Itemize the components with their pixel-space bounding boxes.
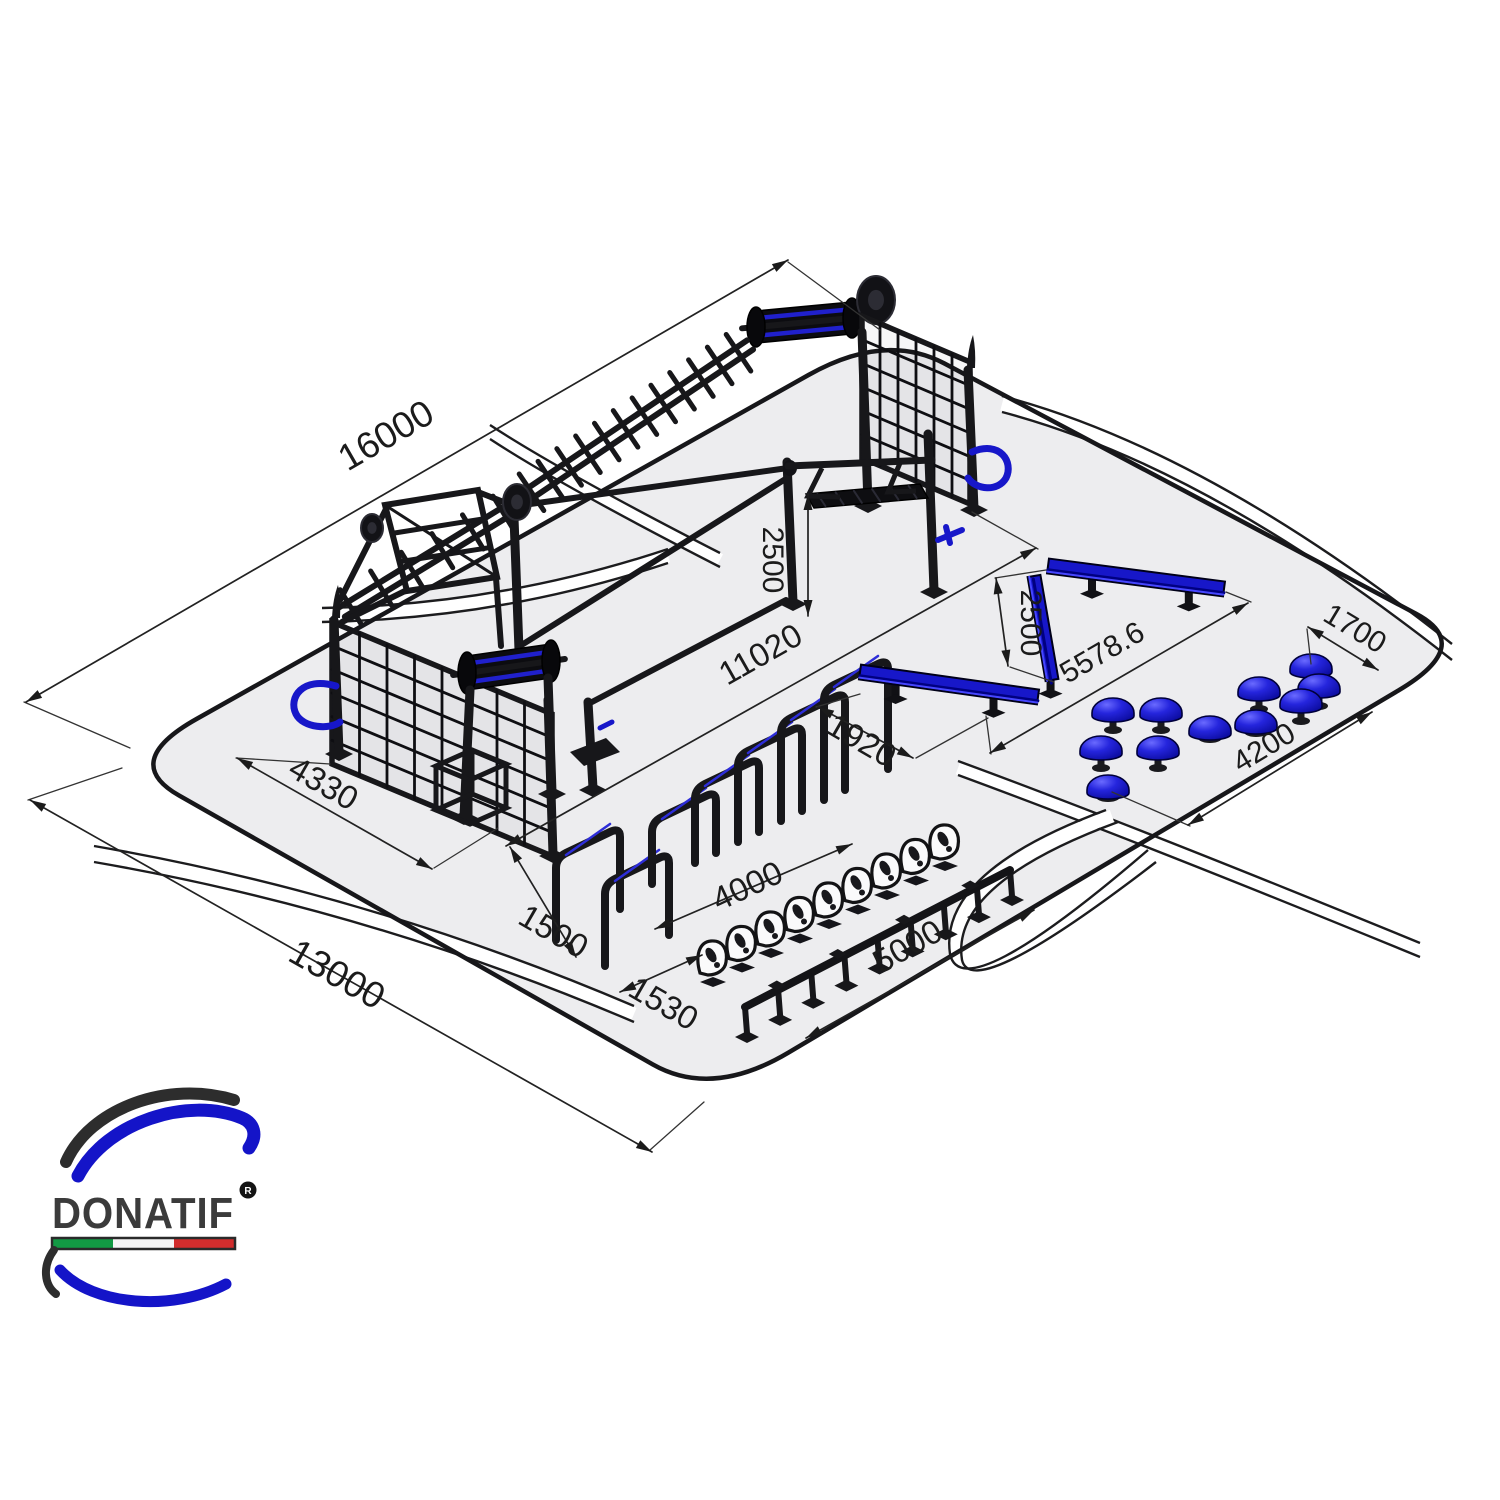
dim-bridge-height: 2500: [756, 527, 789, 594]
dim-beam-spacing: 2500: [1014, 590, 1047, 657]
logo-wordmark: DONATIF: [52, 1189, 234, 1238]
dim-plot-length: 16000: [331, 392, 441, 479]
italian-flag-icon: [52, 1238, 235, 1249]
logo-hook-dark-icon: [46, 1250, 56, 1294]
dim-plot-width: 13000: [282, 931, 392, 1017]
logo-underswoosh-blue-icon: [60, 1270, 226, 1302]
brand-logo: DONATIF R: [46, 1094, 257, 1302]
registered-mark-letter: R: [244, 1186, 252, 1197]
plan-canvas: 16000 13000 4330 2500 11020 1500 1530 40…: [0, 0, 1500, 1500]
